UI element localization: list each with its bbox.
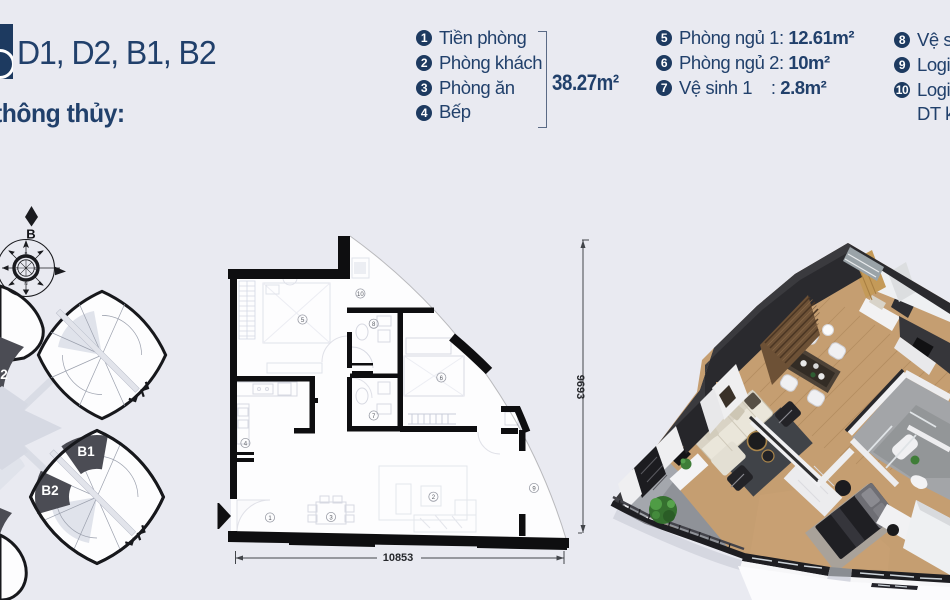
- svg-text:2: 2: [0, 367, 8, 382]
- svg-text:B: B: [24, 251, 27, 256]
- svg-text:T: T: [16, 266, 19, 271]
- svg-text:9693: 9693: [574, 375, 586, 399]
- svg-text:B1: B1: [77, 444, 95, 459]
- svg-text:B: B: [26, 227, 35, 242]
- svg-text:10853: 10853: [383, 552, 414, 564]
- svg-text:10: 10: [357, 292, 364, 298]
- svg-text:B2: B2: [41, 483, 58, 498]
- svg-text:N: N: [24, 281, 27, 286]
